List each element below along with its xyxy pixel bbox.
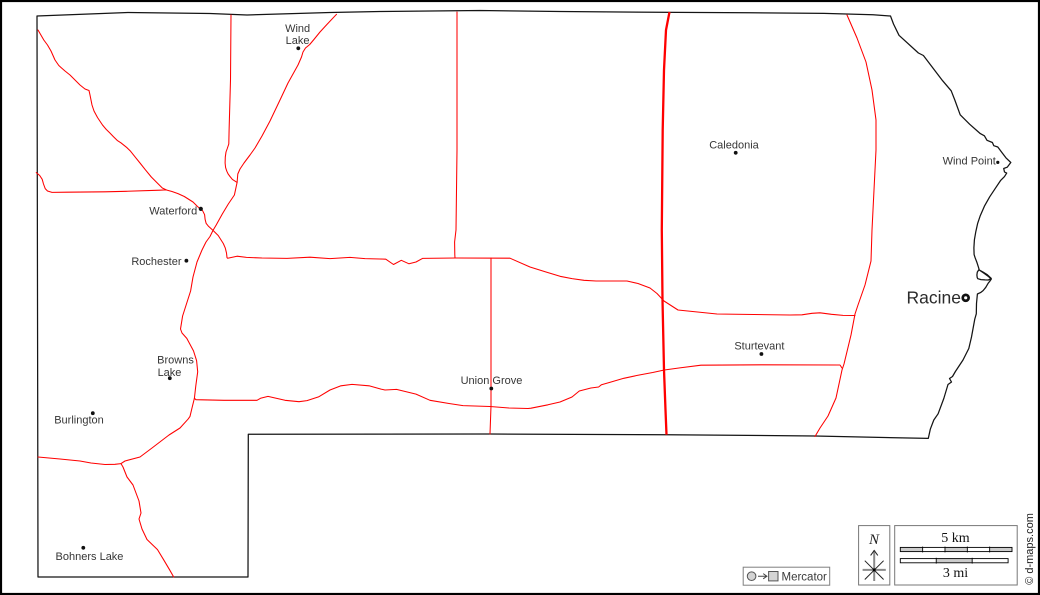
svg-text:Wind Point: Wind Point	[943, 156, 996, 168]
svg-text:Caledonia: Caledonia	[709, 139, 759, 151]
svg-text:Wind: Wind	[285, 23, 310, 35]
svg-text:5 km: 5 km	[941, 531, 970, 546]
svg-text:Mercator: Mercator	[782, 571, 828, 583]
svg-text:Racine: Racine	[907, 287, 961, 307]
svg-text:Sturtevant: Sturtevant	[734, 340, 784, 352]
svg-text:Lake: Lake	[158, 367, 182, 379]
svg-text:Bohners Lake: Bohners Lake	[56, 551, 124, 563]
svg-text:Browns: Browns	[157, 355, 194, 367]
svg-text:Rochester: Rochester	[131, 256, 181, 268]
svg-text:Lake: Lake	[286, 35, 310, 47]
svg-text:© d-maps.com: © d-maps.com	[1024, 513, 1036, 585]
svg-text:N: N	[868, 532, 880, 548]
svg-text:Waterford: Waterford	[149, 206, 197, 218]
svg-text:Burlington: Burlington	[54, 415, 104, 427]
svg-text:3 mi: 3 mi	[943, 566, 968, 581]
svg-text:Union Grove: Union Grove	[461, 375, 523, 387]
